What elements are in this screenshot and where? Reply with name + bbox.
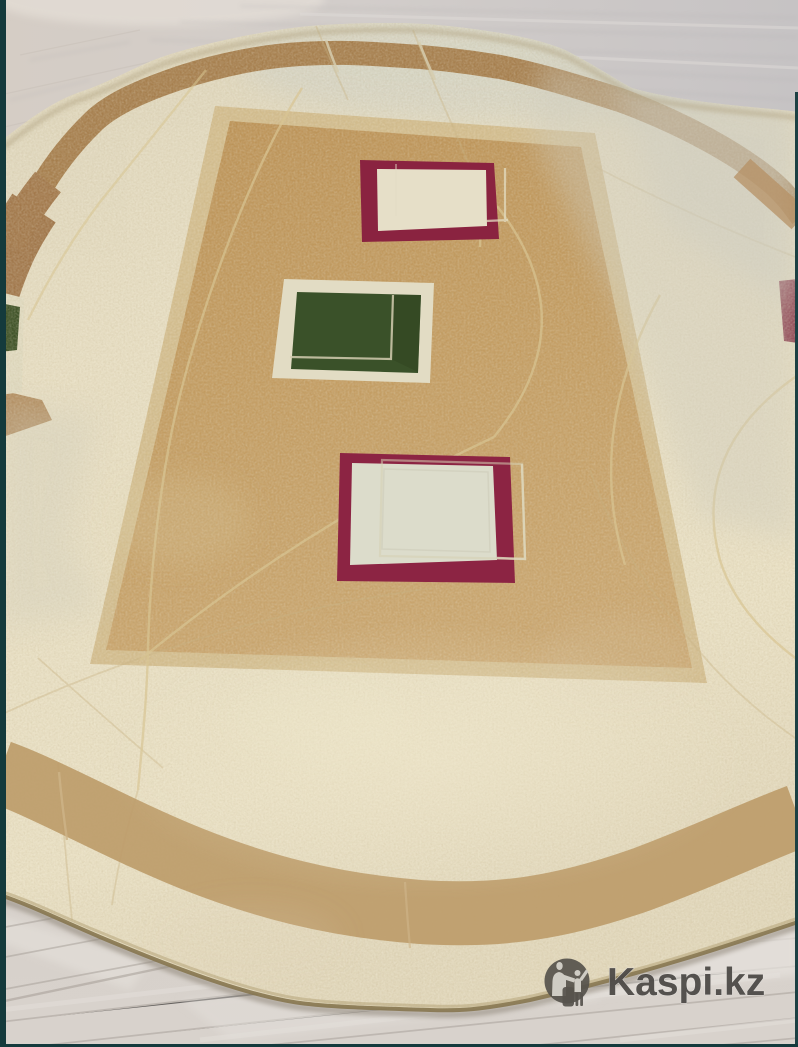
svg-text:Kaspi.kz: Kaspi.kz xyxy=(607,961,765,1004)
